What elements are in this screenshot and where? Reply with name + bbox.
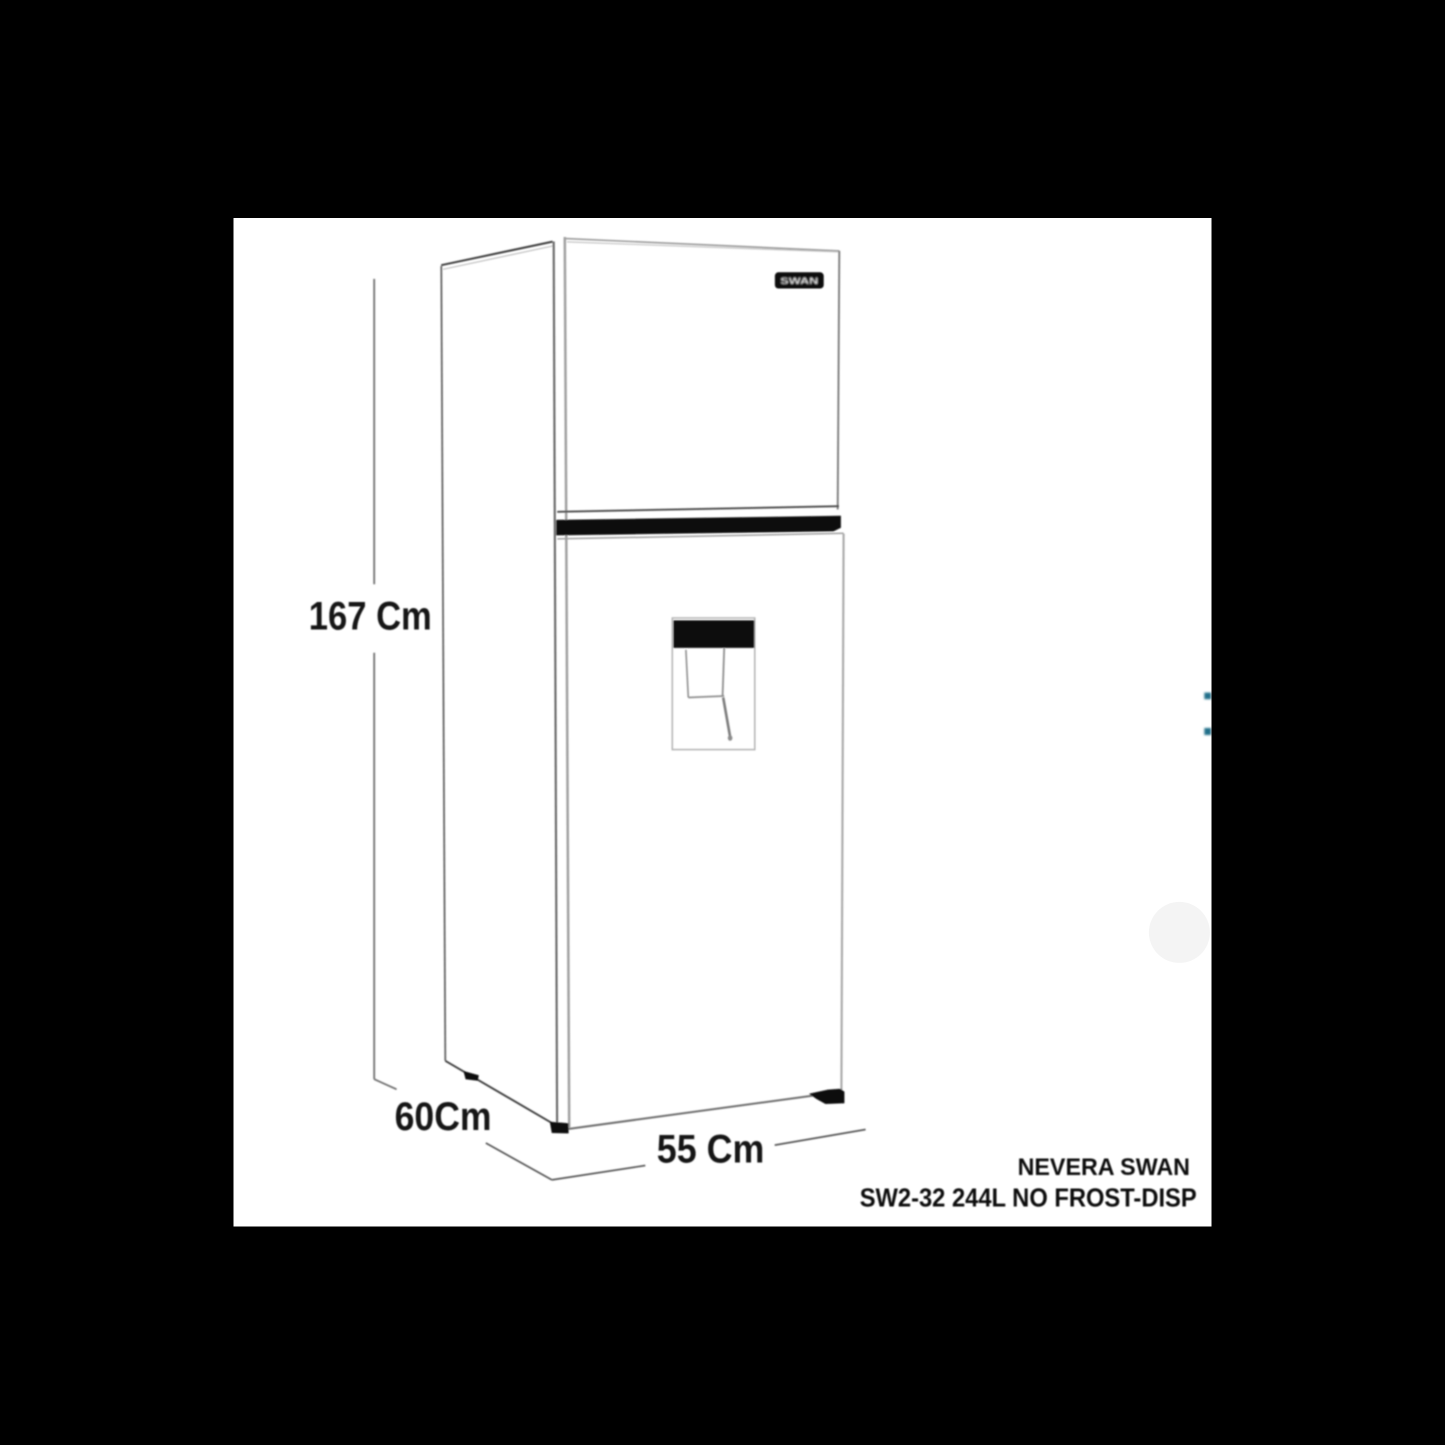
svg-text:NEVERA SWAN: NEVERA SWAN [1018, 1154, 1190, 1181]
svg-text:SWAN: SWAN [780, 276, 818, 286]
svg-text:167 Cm: 167 Cm [309, 594, 432, 638]
svg-text:SW2-32 244L NO FROST-DISP: SW2-32 244L NO FROST-DISP [860, 1183, 1197, 1213]
svg-text:55 Cm: 55 Cm [657, 1128, 765, 1172]
svg-text:60Cm: 60Cm [395, 1095, 492, 1139]
